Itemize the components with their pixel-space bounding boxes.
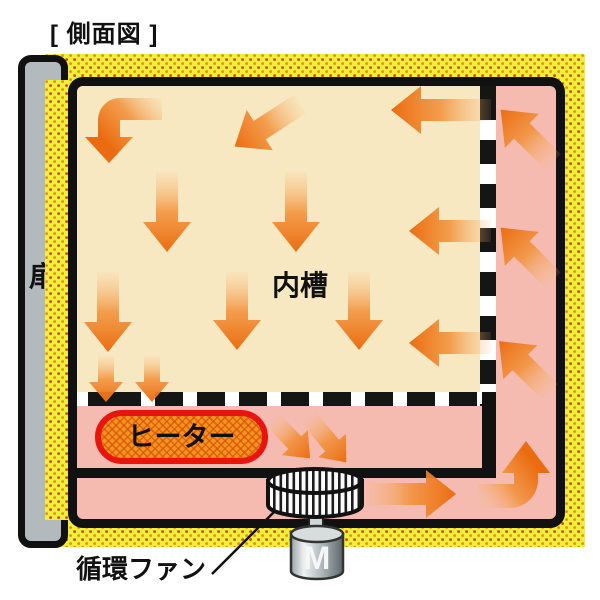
divider-wall-horizontal <box>77 468 496 478</box>
perforated-wall-bottom <box>77 392 480 406</box>
heater-label: ヒーター <box>128 424 236 451</box>
insulation-left-strip <box>45 80 68 520</box>
page-title: [ 側面図 ] <box>50 14 158 49</box>
divider-wall-vertical <box>482 392 496 478</box>
perforated-wall-right <box>480 86 496 406</box>
side-view-diagram: [ 側面図 ] 扉 ヒーター 内槽 <box>0 0 600 600</box>
inner-chamber <box>77 86 480 392</box>
oven-frame: ヒーター 内槽 <box>68 77 565 528</box>
fan-label: 循環ファン <box>76 549 206 586</box>
chamber-label: 内槽 <box>272 264 328 304</box>
heater: ヒーター <box>95 410 268 464</box>
